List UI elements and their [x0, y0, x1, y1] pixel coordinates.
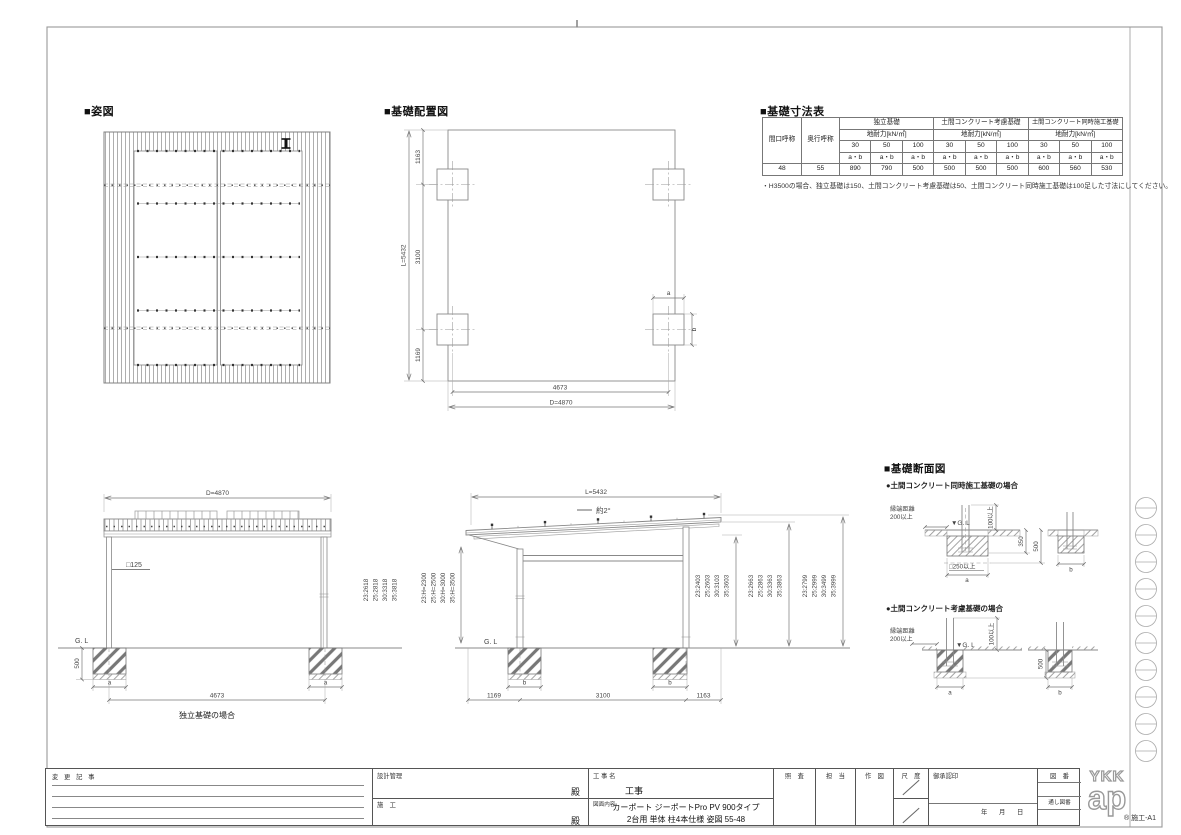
dim-label: a — [108, 680, 112, 687]
footing-section-b — [1048, 650, 1072, 672]
table-cell: 890 — [840, 164, 871, 176]
draw-label: 作 図 — [856, 771, 893, 780]
subtitle-simultaneous-slab: ●土間コンクリート同時施工基礎の場合 — [886, 480, 1018, 491]
height-dim-label: 23:2403 — [695, 574, 702, 597]
ab-label: a・b — [934, 152, 965, 164]
height-dim-label: 35:3999 — [831, 574, 838, 597]
edge-distance-value: 200以上 — [890, 513, 913, 521]
soil-value: 30 — [840, 141, 871, 153]
scale-cell: 尺 度 — [894, 769, 929, 825]
height-dim-label: 35:H=3500 — [450, 572, 457, 603]
height-dim-label: 23:2799 — [802, 574, 809, 597]
edge-distance-label: 縁端距離 — [890, 505, 915, 513]
doc-code: ® 施工-A1 — [1124, 813, 1156, 823]
dim-label: 1169 — [487, 693, 501, 700]
dim-label: 1163 — [697, 693, 711, 700]
change-notes-cell: 変 更 記 事 — [46, 769, 373, 825]
dim-label: b — [668, 680, 672, 687]
dim-label: 500 — [74, 658, 81, 669]
foundation-layout-drawing: 1163 3100 1169 L=5432 4673 D=4870 a b — [401, 130, 699, 411]
dim-label: 3100 — [596, 693, 611, 700]
dim-label: 4673 — [210, 693, 225, 700]
height-dim-label: 35:3818 — [392, 578, 399, 601]
height-dim-label: 35:3603 — [724, 574, 731, 597]
project-name-label: 工 事 名 — [593, 771, 615, 780]
dim-label: D=4870 — [206, 490, 229, 497]
footing-section-b — [1058, 536, 1084, 553]
dim-label: a — [667, 290, 671, 297]
height-dim-label: 25:2603 — [705, 574, 712, 597]
foundation-left — [93, 648, 126, 674]
height-dim-label: 23:H=2300 — [421, 572, 428, 603]
ground-level-label: G. L — [75, 638, 88, 645]
table-cell: 560 — [1060, 164, 1091, 176]
design-manage-label: 設計管理 — [377, 771, 402, 780]
draw-cell: 作 図 — [856, 769, 894, 825]
foundation-dimension-table: 間口呼称 奥行呼称 独立基礎 土間コンクリート考慮基礎 土間コンクリート同時施工… — [762, 117, 1123, 176]
table-cell: 530 — [1091, 164, 1123, 176]
subtitle-considered-slab: ●土間コンクリート考慮基礎の場合 — [886, 603, 1003, 614]
month-label: 月 — [999, 807, 1005, 816]
dim-label: b — [691, 327, 698, 331]
ab-label: a・b — [902, 152, 933, 164]
height-dim-label: 30:3103 — [714, 574, 721, 597]
ab-label: a・b — [871, 152, 902, 164]
dim-label: 1163 — [415, 150, 422, 164]
group-header-simultaneous: 土間コンクリート同時施工基礎 — [1028, 118, 1122, 130]
dim-label: L=5432 — [585, 489, 607, 496]
drawing-content-line2: 2台用 単体 柱4本仕様 姿図 55-48 — [589, 814, 773, 825]
dim-label: L=5432 — [401, 244, 408, 266]
ab-label: a・b — [965, 152, 996, 164]
soil-value: 30 — [934, 141, 965, 153]
design-construct-cell: 設計管理 殿 施 工 殿 — [373, 769, 589, 825]
foundation-section-sub1: 縁端距離 200以上 ▼G. L 100以上 350 500 □250以上 a … — [890, 505, 1098, 584]
soil-header: 地耐力[kN/㎡] — [1028, 129, 1122, 141]
dim-label: 100以上 — [987, 506, 995, 529]
height-dim-label: 25:H=2500 — [431, 572, 438, 603]
dim-label: 1169 — [415, 348, 422, 362]
dim-label: 3100 — [415, 249, 422, 264]
dim-label: a — [324, 680, 328, 687]
soil-value: 30 — [1028, 141, 1059, 153]
table-cell: 500 — [934, 164, 965, 176]
height-dim-label: 23:2663 — [748, 574, 755, 597]
scale-slash-icon — [902, 780, 919, 795]
table-cell: 600 — [1028, 164, 1059, 176]
caption-independent-foundation: 独立基礎の場合 — [179, 710, 235, 720]
soil-value: 100 — [902, 141, 933, 153]
base-size-label: □250以上 — [949, 563, 975, 571]
column-left — [107, 537, 112, 648]
edge-distance-value: 200以上 — [890, 635, 913, 643]
approval-label: 御承認印 — [933, 771, 958, 780]
table-cell: 55 — [802, 164, 840, 176]
edge-distance-label: 縁端距離 — [890, 627, 915, 635]
day-label: 日 — [1017, 807, 1023, 816]
table-cell: 48 — [763, 164, 802, 176]
height-dim-label: 30:3318 — [382, 578, 389, 601]
group-header-considered: 土間コンクリート考慮基礎 — [934, 118, 1028, 130]
year-label: 年 — [981, 807, 987, 816]
drawing-number-cell: 図 番 通し図番 — [1038, 769, 1081, 825]
dim-label: a — [948, 690, 952, 697]
roof-beam — [104, 519, 331, 531]
height-dim-label: 35:3863 — [777, 574, 784, 597]
soil-value: 50 — [871, 141, 902, 153]
approval-cell: 御承認印 年 月 日 — [929, 769, 1038, 825]
side-elevation-drawing: L=5432 約2° G. L — [455, 489, 850, 704]
post-size-label: □125 — [126, 562, 142, 569]
height-dim-label: 23:2618 — [363, 578, 370, 601]
footing-section-a — [937, 650, 963, 672]
soil-value: 50 — [965, 141, 996, 153]
check-cell: 照 査 — [774, 769, 816, 825]
foundation-right — [309, 648, 342, 674]
ab-label: a・b — [840, 152, 871, 164]
check-label: 照 査 — [774, 771, 815, 780]
dim-label: 500 — [1038, 658, 1045, 669]
dim-label: 350 — [1018, 536, 1025, 547]
construct-label: 施 工 — [377, 800, 396, 809]
foundation-rear — [653, 648, 687, 674]
title-foundation-layout: ■基礎配置図 — [384, 103, 449, 119]
pv-panel-left — [135, 511, 217, 519]
height-dim-label: 25:2863 — [758, 574, 765, 597]
table-cell: 500 — [997, 164, 1028, 176]
charge-label: 担 当 — [816, 771, 855, 780]
dim-label: b — [523, 680, 527, 687]
height-dim-label: 30:3363 — [767, 574, 774, 597]
dim-label: b — [1069, 567, 1073, 574]
footing-section-a — [947, 536, 988, 556]
height-dim-label: 25:2999 — [812, 574, 819, 597]
ab-label: a・b — [1028, 152, 1059, 164]
group-header-independent: 独立基礎 — [840, 118, 934, 130]
project-content-cell: 工 事 名 工事 図面内容 カーポート ジーポートPro PV 900タイプ 2… — [589, 769, 774, 825]
drawing-sheet: 1163 3100 1169 L=5432 4673 D=4870 a b D=… — [0, 0, 1181, 835]
construct-dono-label: 殿 — [571, 814, 580, 827]
table-cell: 500 — [902, 164, 933, 176]
height-dim-label: 30:3499 — [821, 574, 828, 597]
dim-label: 500 — [1033, 541, 1040, 552]
soil-value: 50 — [1060, 141, 1091, 153]
binding-hole-marks — [1136, 498, 1157, 762]
table-row: 48 55 890 790 500 500 500 500 600 560 53… — [763, 164, 1123, 176]
column-rear — [683, 527, 689, 648]
dim-label: a — [965, 577, 969, 584]
soil-value: 100 — [997, 141, 1028, 153]
title-plan-view: ■姿図 — [84, 103, 114, 119]
table-cell: 500 — [965, 164, 996, 176]
change-notes-label: 変 更 記 事 — [52, 772, 96, 781]
scale-label: 尺 度 — [894, 771, 928, 780]
ykk-ap-logo: YKK ap — [1081, 769, 1133, 814]
foundation-section-sub2: 縁端距離 200以上 ▼G. L 100以上 500 a b — [890, 618, 1098, 697]
ab-label: a・b — [1091, 152, 1123, 164]
table-cell: 790 — [871, 164, 902, 176]
charge-cell: 担 当 — [816, 769, 856, 825]
dim-label: 4673 — [553, 385, 568, 392]
ground-level-label: G. L — [484, 639, 497, 646]
pv-panel-right — [227, 511, 299, 519]
height-dim-label: 30:H=3000 — [440, 572, 447, 603]
scale-slash-icon — [902, 808, 919, 823]
plan-view-drawing — [104, 132, 330, 383]
ground-level-label: ▼G. L — [951, 520, 970, 527]
column-right — [321, 537, 327, 648]
project-suffix-label: 工事 — [625, 784, 643, 797]
ab-label: a・b — [1060, 152, 1091, 164]
ab-label: a・b — [997, 152, 1028, 164]
col-header-span: 間口呼称 — [763, 118, 802, 164]
title-foundation-section: ■基礎断面図 — [884, 461, 946, 476]
foundation-front — [508, 648, 541, 674]
dim-label: D=4870 — [550, 400, 573, 407]
drawing-number-label: 図 番 — [1038, 771, 1081, 780]
dim-label: b — [1058, 690, 1062, 697]
col-header-depth: 奥行呼称 — [802, 118, 840, 164]
soil-header: 地耐力[kN/㎡] — [934, 129, 1028, 141]
drawing-content-line1: カーポート ジーポートPro PV 900タイプ — [589, 802, 773, 813]
title-block: 変 更 記 事 設計管理 殿 施 工 殿 工 事 名 工事 図面内容 カーポート… — [45, 768, 1080, 826]
front-elevation-drawing: D=4870 □125 G. L 500 a a — [58, 490, 461, 720]
soil-header: 地耐力[kN/㎡] — [840, 129, 934, 141]
through-number-label: 通し図番 — [1038, 798, 1081, 806]
soil-value: 100 — [1091, 141, 1123, 153]
table-note: ・H3500の場合、独立基礎は150、土間コンクリート考慮基礎は50、土間コンク… — [762, 180, 1172, 190]
roof-slope-label: 約2° — [596, 505, 611, 515]
dim-label: 100以上 — [988, 623, 996, 646]
logo-ap-text: ap — [1081, 781, 1133, 814]
height-dim-label: 25:2818 — [373, 578, 380, 601]
design-dono-label: 殿 — [571, 785, 580, 798]
